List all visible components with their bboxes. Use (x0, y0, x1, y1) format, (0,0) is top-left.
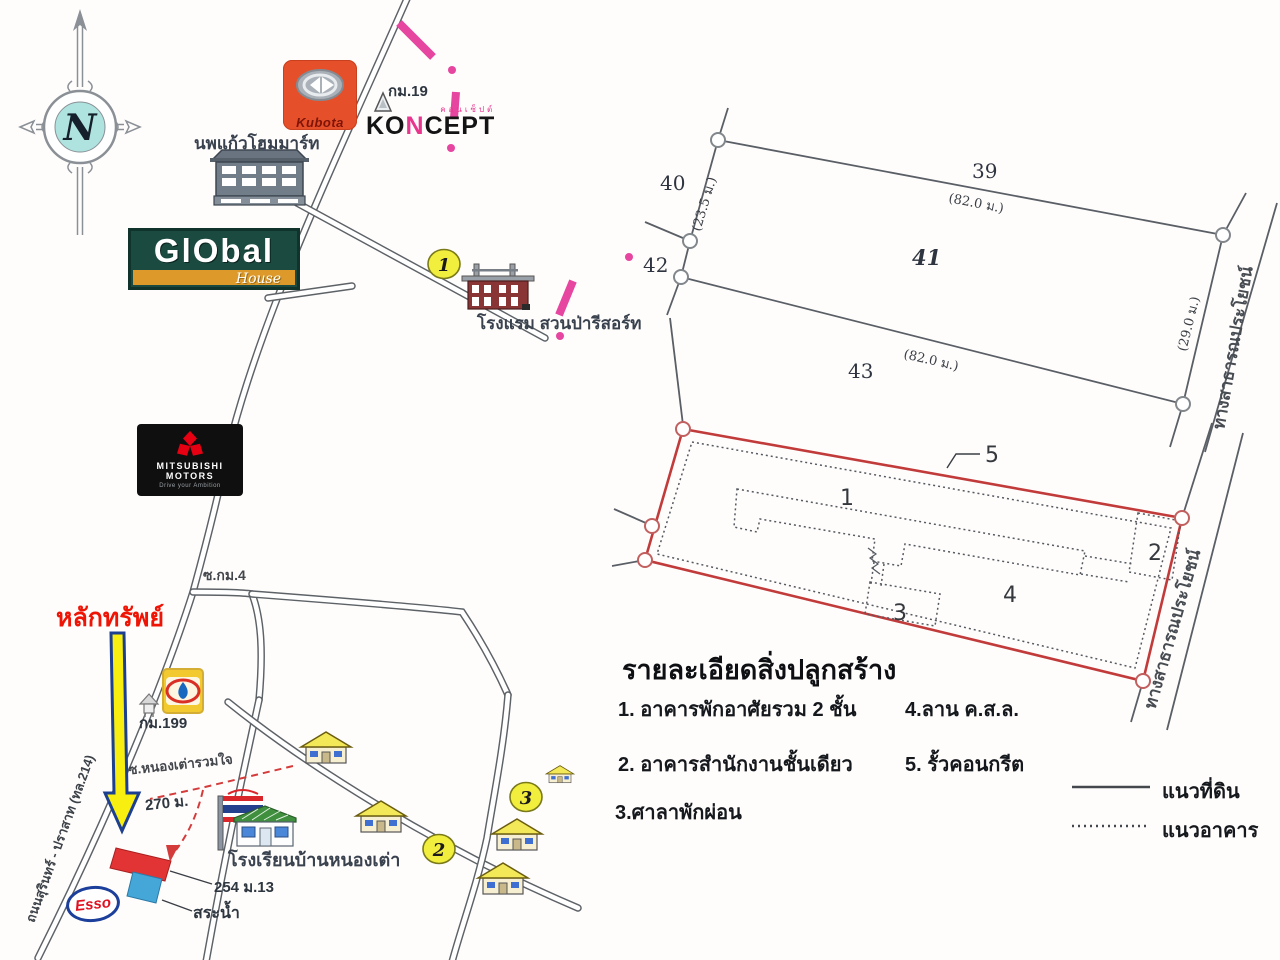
site-building-1: 1 (840, 486, 854, 511)
legend-solid-label: แนวที่ดิน (1162, 775, 1240, 807)
legend-dotted-label: แนวอาคาร (1162, 814, 1258, 846)
legend-title: รายละเอียดสิ่งปลูกสร้าง (622, 648, 896, 691)
mitsubishi-label-2: MOTORS (166, 471, 214, 481)
site-area-4: 4 (1003, 583, 1017, 608)
svg-text:1: 1 (438, 255, 451, 276)
house-icon (546, 766, 574, 783)
legend-item-3: 3.ศาลาพักผ่อน (615, 796, 742, 828)
legend-item-4: 4.ลาน ค.ส.ล. (905, 693, 1019, 725)
mitsubishi-diamonds-icon (173, 429, 207, 461)
marker-3: 3 (510, 783, 542, 812)
site-fence-5: 5 (985, 443, 999, 468)
gas-station-logo (162, 668, 204, 714)
plot-41: 41 (912, 245, 941, 270)
legend-line-samples (1072, 787, 1150, 826)
map-canvas: N 39 40 41 42 43 (82.0 ม.) (82.0 ม.) (23… (0, 0, 1280, 960)
leader-254 (170, 871, 212, 884)
plot-40: 40 (660, 171, 685, 195)
esso-wordmark: Esso (74, 894, 111, 915)
plot-43: 43 (848, 359, 873, 383)
koncept-cept: CEPT (425, 112, 496, 140)
global-house-sub: House (236, 271, 281, 287)
house-icon (301, 732, 351, 763)
koncept-ko: KO (366, 112, 406, 140)
parcel-public-road-label: ทางสาธารณประโยชน์ (1208, 264, 1256, 430)
soi-km4-label: ซ.กม.4 (203, 565, 246, 587)
plot-39: 39 (972, 159, 997, 183)
compass-north-letter: N (63, 107, 99, 149)
kubota-logo: Kubota (283, 60, 357, 130)
dim-right: (29.0 ม.) (1175, 295, 1203, 353)
dim-bottom: (82.0 ม.) (902, 347, 960, 374)
house-icon (492, 819, 542, 850)
compass-rose: N (20, 9, 140, 235)
legend-item-1: 1. อาคารพักอาศัยรวม 2 ชั้น (618, 693, 856, 725)
homemart-building-icon (210, 150, 309, 205)
legend-item-2: 2. อาคารสำนักงานชั้นเดียว (618, 748, 853, 780)
legend-item-5: 5. รั้วคอนกรีต (905, 748, 1024, 780)
koncept-thai-label: คอนเซ็ปต์ (440, 103, 495, 116)
koncept-n: N (406, 112, 425, 140)
gas-station-emblem-icon (164, 671, 202, 711)
hotel-label: โรงแรม สวนป่ารีสอร์ท (477, 310, 642, 337)
plot-42: 42 (643, 253, 668, 277)
mitsubishi-tagline: Drive your Ambition (159, 483, 221, 489)
dim-top: (82.0 ม.) (947, 191, 1005, 216)
mitsubishi-label-1: MITSUBISHI (156, 461, 223, 471)
svg-text:3: 3 (520, 788, 533, 809)
subject-label: หลักทรัพย์ (56, 598, 164, 638)
subject-arrow (105, 633, 139, 831)
kubota-label: Kubota (283, 115, 357, 130)
site-public-road-label: ทางสาธารณประโยชน์ (1140, 547, 1205, 712)
marker-1: 1 (428, 250, 460, 279)
site-building-3: 3 (893, 601, 907, 626)
global-house-logo: GlObal House (128, 228, 300, 290)
parcel-diagram: 39 40 41 42 43 (82.0 ม.) (82.0 ม.) (23.5… (643, 108, 1277, 452)
koncept-logo: คอนเซ็ปต์KONCEPT (366, 112, 495, 141)
svg-text:2: 2 (432, 840, 446, 861)
school-label: โรงเรียนบ้านหนองเต่า (228, 845, 400, 874)
dim-left: (23.5 ม.) (689, 175, 720, 233)
pond-label: สระน้ำ (193, 901, 240, 926)
house-icon (356, 801, 406, 832)
mitsubishi-logo: MITSUBISHI MOTORS Drive your Ambition (137, 424, 243, 496)
global-house-wordmark: GlObal (131, 231, 297, 271)
leader-pond (162, 900, 192, 911)
kubota-emblem-icon (283, 60, 357, 108)
hotel-icon (462, 264, 534, 310)
address-label: 254 ม.13 (214, 875, 274, 899)
marker-2: 2 (423, 835, 455, 864)
homemart-label: นพแก้วโฮมมาร์ท (194, 130, 319, 157)
site-building-2: 2 (1148, 541, 1162, 566)
dist-270-label: 270 ม. (144, 789, 190, 817)
km19-label: กม.19 (388, 79, 428, 103)
km199-label: กม.199 (139, 711, 187, 735)
